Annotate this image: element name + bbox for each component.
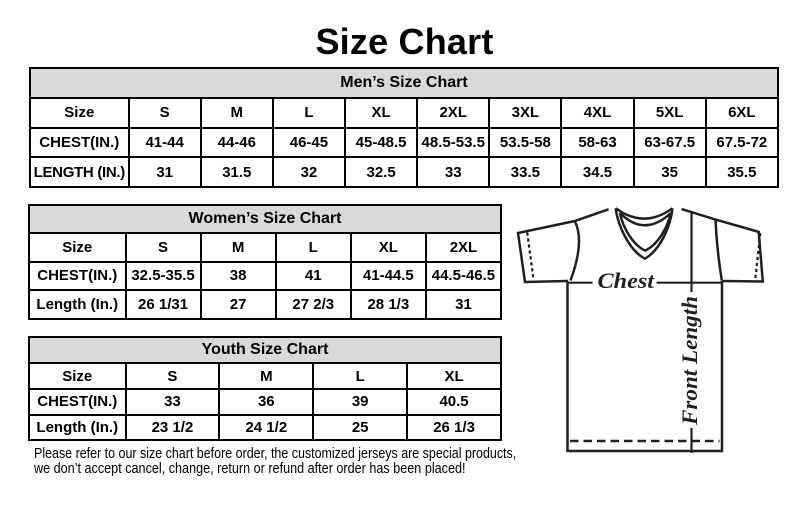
svg-text:Chest: Chest xyxy=(598,268,655,293)
svg-text:Front Length: Front Length xyxy=(677,296,702,426)
